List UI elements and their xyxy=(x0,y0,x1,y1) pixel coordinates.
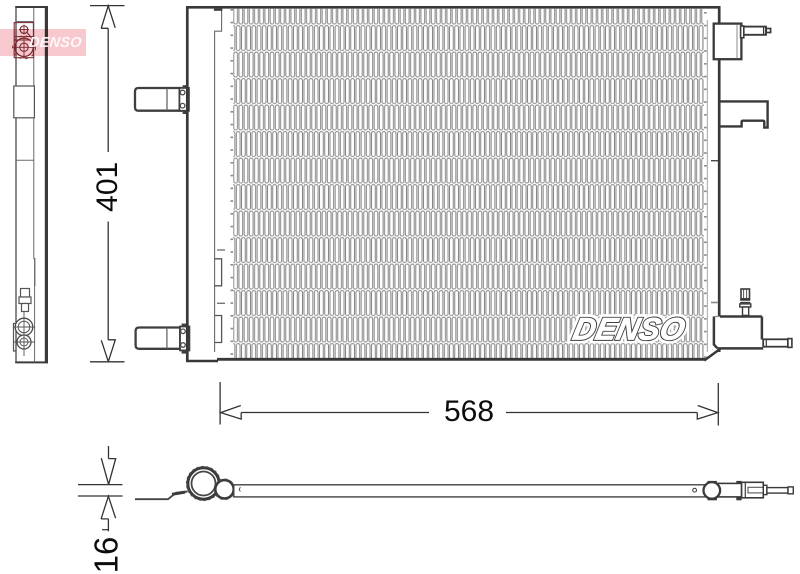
svg-text:16: 16 xyxy=(87,537,124,574)
svg-text:568: 568 xyxy=(444,395,494,428)
svg-text:DENSO: DENSO xyxy=(570,312,689,347)
svg-text:401: 401 xyxy=(91,162,124,212)
